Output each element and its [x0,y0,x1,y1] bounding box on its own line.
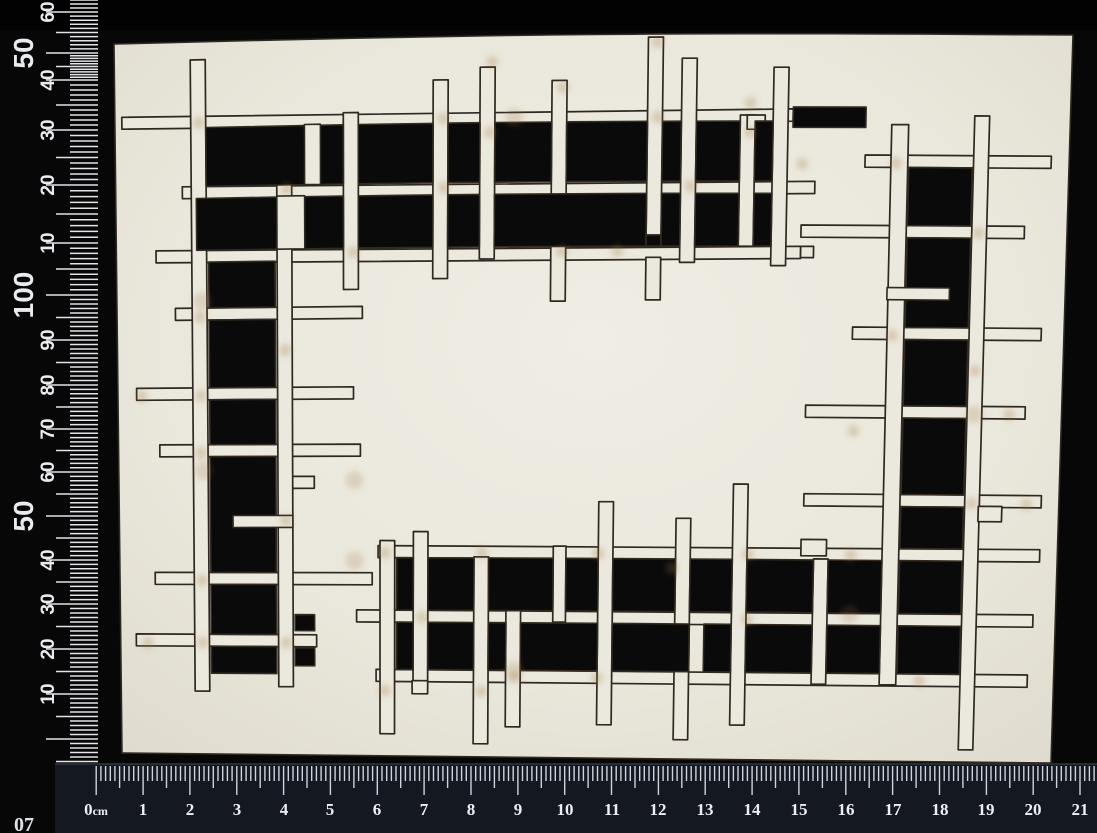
svg-text:10: 10 [557,800,574,819]
svg-text:60: 60 [38,1,59,22]
svg-text:15: 15 [791,800,808,819]
svg-text:07: 07 [14,814,34,833]
svg-text:80: 80 [38,374,59,395]
svg-text:20: 20 [38,638,59,659]
svg-text:100: 100 [8,272,39,319]
svg-text:21: 21 [1072,800,1089,819]
svg-text:5: 5 [326,800,335,819]
svg-text:10: 10 [38,232,59,253]
svg-text:7: 7 [420,800,429,819]
svg-text:8: 8 [467,800,476,819]
svg-text:10: 10 [38,683,59,704]
svg-text:19: 19 [978,800,995,819]
svg-text:50: 50 [8,500,39,531]
svg-text:60: 60 [38,461,59,482]
svg-text:11: 11 [604,800,620,819]
svg-text:40: 40 [38,549,59,570]
svg-text:4: 4 [280,800,289,819]
svg-text:2: 2 [186,800,195,819]
svg-text:17: 17 [885,800,903,819]
svg-text:3: 3 [233,800,242,819]
svg-text:50: 50 [8,37,39,68]
svg-text:12: 12 [650,800,667,819]
svg-text:70: 70 [38,418,59,439]
svg-text:18: 18 [932,800,949,819]
svg-text:20: 20 [1025,800,1042,819]
svg-text:30: 30 [38,593,59,614]
svg-text:20: 20 [38,174,59,195]
svg-text:30: 30 [38,119,59,140]
svg-text:13: 13 [697,800,714,819]
svg-text:1: 1 [139,800,148,819]
svg-text:16: 16 [838,800,855,819]
svg-text:9: 9 [514,800,523,819]
svg-text:6: 6 [373,800,382,819]
svg-text:40: 40 [38,69,59,90]
svg-text:14: 14 [744,800,762,819]
svg-text:90: 90 [38,329,59,350]
